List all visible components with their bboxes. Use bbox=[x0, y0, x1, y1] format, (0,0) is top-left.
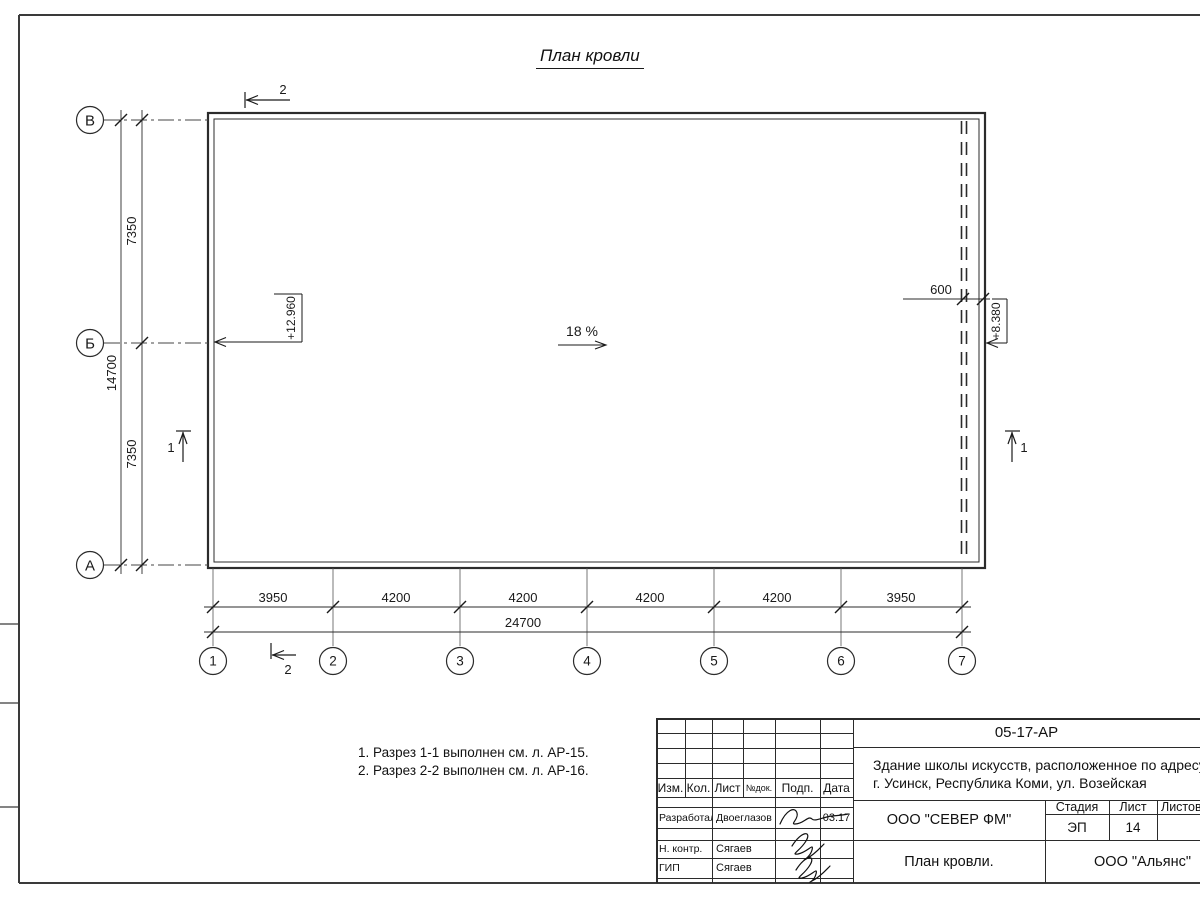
tb-col-data: Дата bbox=[820, 778, 853, 797]
dim-left-total: 14700 bbox=[104, 355, 119, 391]
parapet-dashed-lines bbox=[962, 121, 967, 560]
dim-bottom-1: 3950 bbox=[259, 590, 288, 605]
title-block: Изм. Кол. Лист №док. Подп. Дата Разработ… bbox=[656, 718, 1200, 883]
tb-role-gip: ГИП bbox=[659, 858, 712, 878]
notes: 1. Разрез 1-1 выполнен см. л. АР-15. 2. … bbox=[358, 744, 589, 780]
tb-date-developed: 03.17 bbox=[820, 807, 853, 828]
axis-label-7: 7 bbox=[958, 654, 966, 669]
tb-stage-label: Стадия bbox=[1045, 800, 1109, 814]
tb-col-izm: Изм. bbox=[656, 778, 685, 797]
page-title: План кровли bbox=[536, 46, 644, 69]
offset-dimension-600: 600 bbox=[903, 282, 990, 305]
tb-sheet-value: 14 bbox=[1109, 814, 1157, 840]
roof-outline bbox=[208, 113, 985, 568]
tb-project-line2: г. Усинск, Республика Коми, ул. Возейска… bbox=[873, 774, 1147, 792]
left-dimensions: 7350 7350 14700 bbox=[104, 110, 148, 574]
axis-label-5: 5 bbox=[710, 654, 718, 669]
tb-col-kol: Кол. bbox=[685, 778, 712, 797]
dim-offset-label: 600 bbox=[930, 282, 952, 297]
dim-bottom-3: 4200 bbox=[509, 590, 538, 605]
dim-left-1: 7350 bbox=[124, 217, 139, 246]
axis-label-v: В bbox=[85, 112, 95, 129]
tb-project-name: Здание школы искусств, расположенное по … bbox=[873, 747, 1200, 800]
dimension-ticks bbox=[115, 114, 148, 571]
section-mark-2-top: 2 bbox=[245, 82, 290, 108]
tb-sheets-value bbox=[1157, 814, 1200, 840]
slope-annotation: 18 % bbox=[558, 323, 606, 349]
elevation-mark-right: +8.380 bbox=[986, 299, 1007, 348]
tb-name-ncontr: Сягаев bbox=[716, 840, 775, 858]
tb-company: ООО "СЕВЕР ФМ" bbox=[853, 800, 1045, 840]
elevation-mark-left: +12.960 bbox=[214, 294, 302, 347]
section-1-label: 1 bbox=[1020, 440, 1027, 455]
dim-bottom-4: 4200 bbox=[636, 590, 665, 605]
elevation-right-label: +8.380 bbox=[989, 302, 1003, 339]
grid-line bbox=[656, 763, 853, 764]
section-mark-1-right: 1 bbox=[1005, 431, 1028, 462]
tb-name-developed: Двоеглазов bbox=[716, 807, 775, 828]
grid-line bbox=[656, 828, 853, 829]
section-mark-1-left: 1 bbox=[167, 431, 191, 462]
axis-label-b: Б bbox=[85, 335, 95, 352]
tb-role-developed: Разработал bbox=[659, 807, 712, 828]
note-line-2: 2. Разрез 2-2 выполнен см. л. АР-16. bbox=[358, 762, 589, 780]
bottom-dimensions: 3950 4200 4200 4200 4200 3950 24700 bbox=[204, 590, 971, 638]
axis-label-2: 2 bbox=[329, 654, 337, 669]
dim-left-2: 7350 bbox=[124, 440, 139, 469]
tb-col-list: Лист bbox=[712, 778, 743, 797]
slope-label: 18 % bbox=[566, 323, 598, 339]
grid-line bbox=[656, 878, 853, 879]
tb-contractor: ООО "Альянс" bbox=[1045, 840, 1200, 883]
tb-col-podp: Подп. bbox=[775, 778, 820, 797]
tb-doc-number: 05-17-АР bbox=[853, 718, 1200, 747]
grid-line bbox=[656, 797, 853, 798]
tb-sheets-label: Листов bbox=[1161, 800, 1200, 814]
elevation-left-label: +12.960 bbox=[284, 296, 298, 340]
grid-line bbox=[656, 733, 853, 734]
axis-label-3: 3 bbox=[456, 654, 464, 669]
dim-bottom-6: 3950 bbox=[887, 590, 916, 605]
tb-role-ncontr: Н. контр. bbox=[659, 840, 712, 858]
tb-sheet-label: Лист bbox=[1109, 800, 1157, 814]
tb-col-ndok: №док. bbox=[743, 778, 775, 797]
axis-label-a: А bbox=[85, 557, 95, 574]
column-axis-bubbles: 1 2 3 4 5 6 7 bbox=[200, 648, 976, 675]
tb-name-gip: Сягаев bbox=[716, 858, 775, 878]
tb-project-line1: Здание школы искусств, расположенное по … bbox=[873, 756, 1200, 774]
axis-label-6: 6 bbox=[837, 654, 845, 669]
section-1-label: 1 bbox=[167, 440, 174, 455]
margin-ticks bbox=[0, 624, 19, 807]
tb-stage-value: ЭП bbox=[1045, 814, 1109, 840]
grid-line bbox=[656, 748, 853, 749]
section-mark-2-bottom: 2 bbox=[271, 643, 296, 677]
note-line-1: 1. Разрез 1-1 выполнен см. л. АР-15. bbox=[358, 744, 589, 762]
section-2-label: 2 bbox=[284, 662, 291, 677]
drawing-sheet: В Б А 7350 7350 14700 bbox=[0, 0, 1200, 900]
tb-sheet-title: План кровли. bbox=[853, 840, 1045, 883]
axis-label-1: 1 bbox=[209, 654, 217, 669]
section-2-label: 2 bbox=[279, 82, 286, 97]
axis-label-4: 4 bbox=[583, 654, 591, 669]
dim-bottom-5: 4200 bbox=[763, 590, 792, 605]
dim-bottom-total: 24700 bbox=[505, 615, 541, 630]
dim-bottom-2: 4200 bbox=[382, 590, 411, 605]
